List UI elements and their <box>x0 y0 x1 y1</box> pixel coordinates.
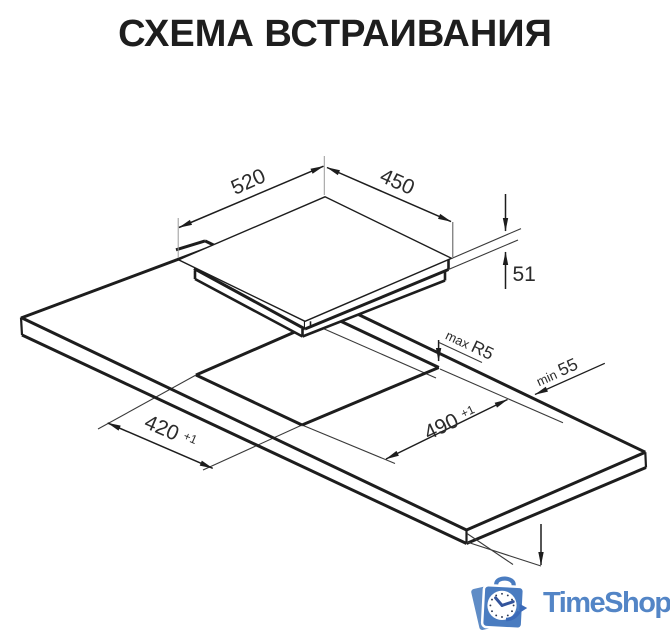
svg-text:450: 450 <box>376 164 417 199</box>
svg-text:TimeShop: TimeShop <box>543 587 670 619</box>
svg-text:420 +1: 420 +1 <box>141 411 201 454</box>
svg-text:520: 520 <box>228 164 269 199</box>
svg-text:СХЕМА ВСТРАИВАНИЯ: СХЕМА ВСТРАИВАНИЯ <box>118 13 552 55</box>
svg-text:51: 51 <box>513 263 536 286</box>
